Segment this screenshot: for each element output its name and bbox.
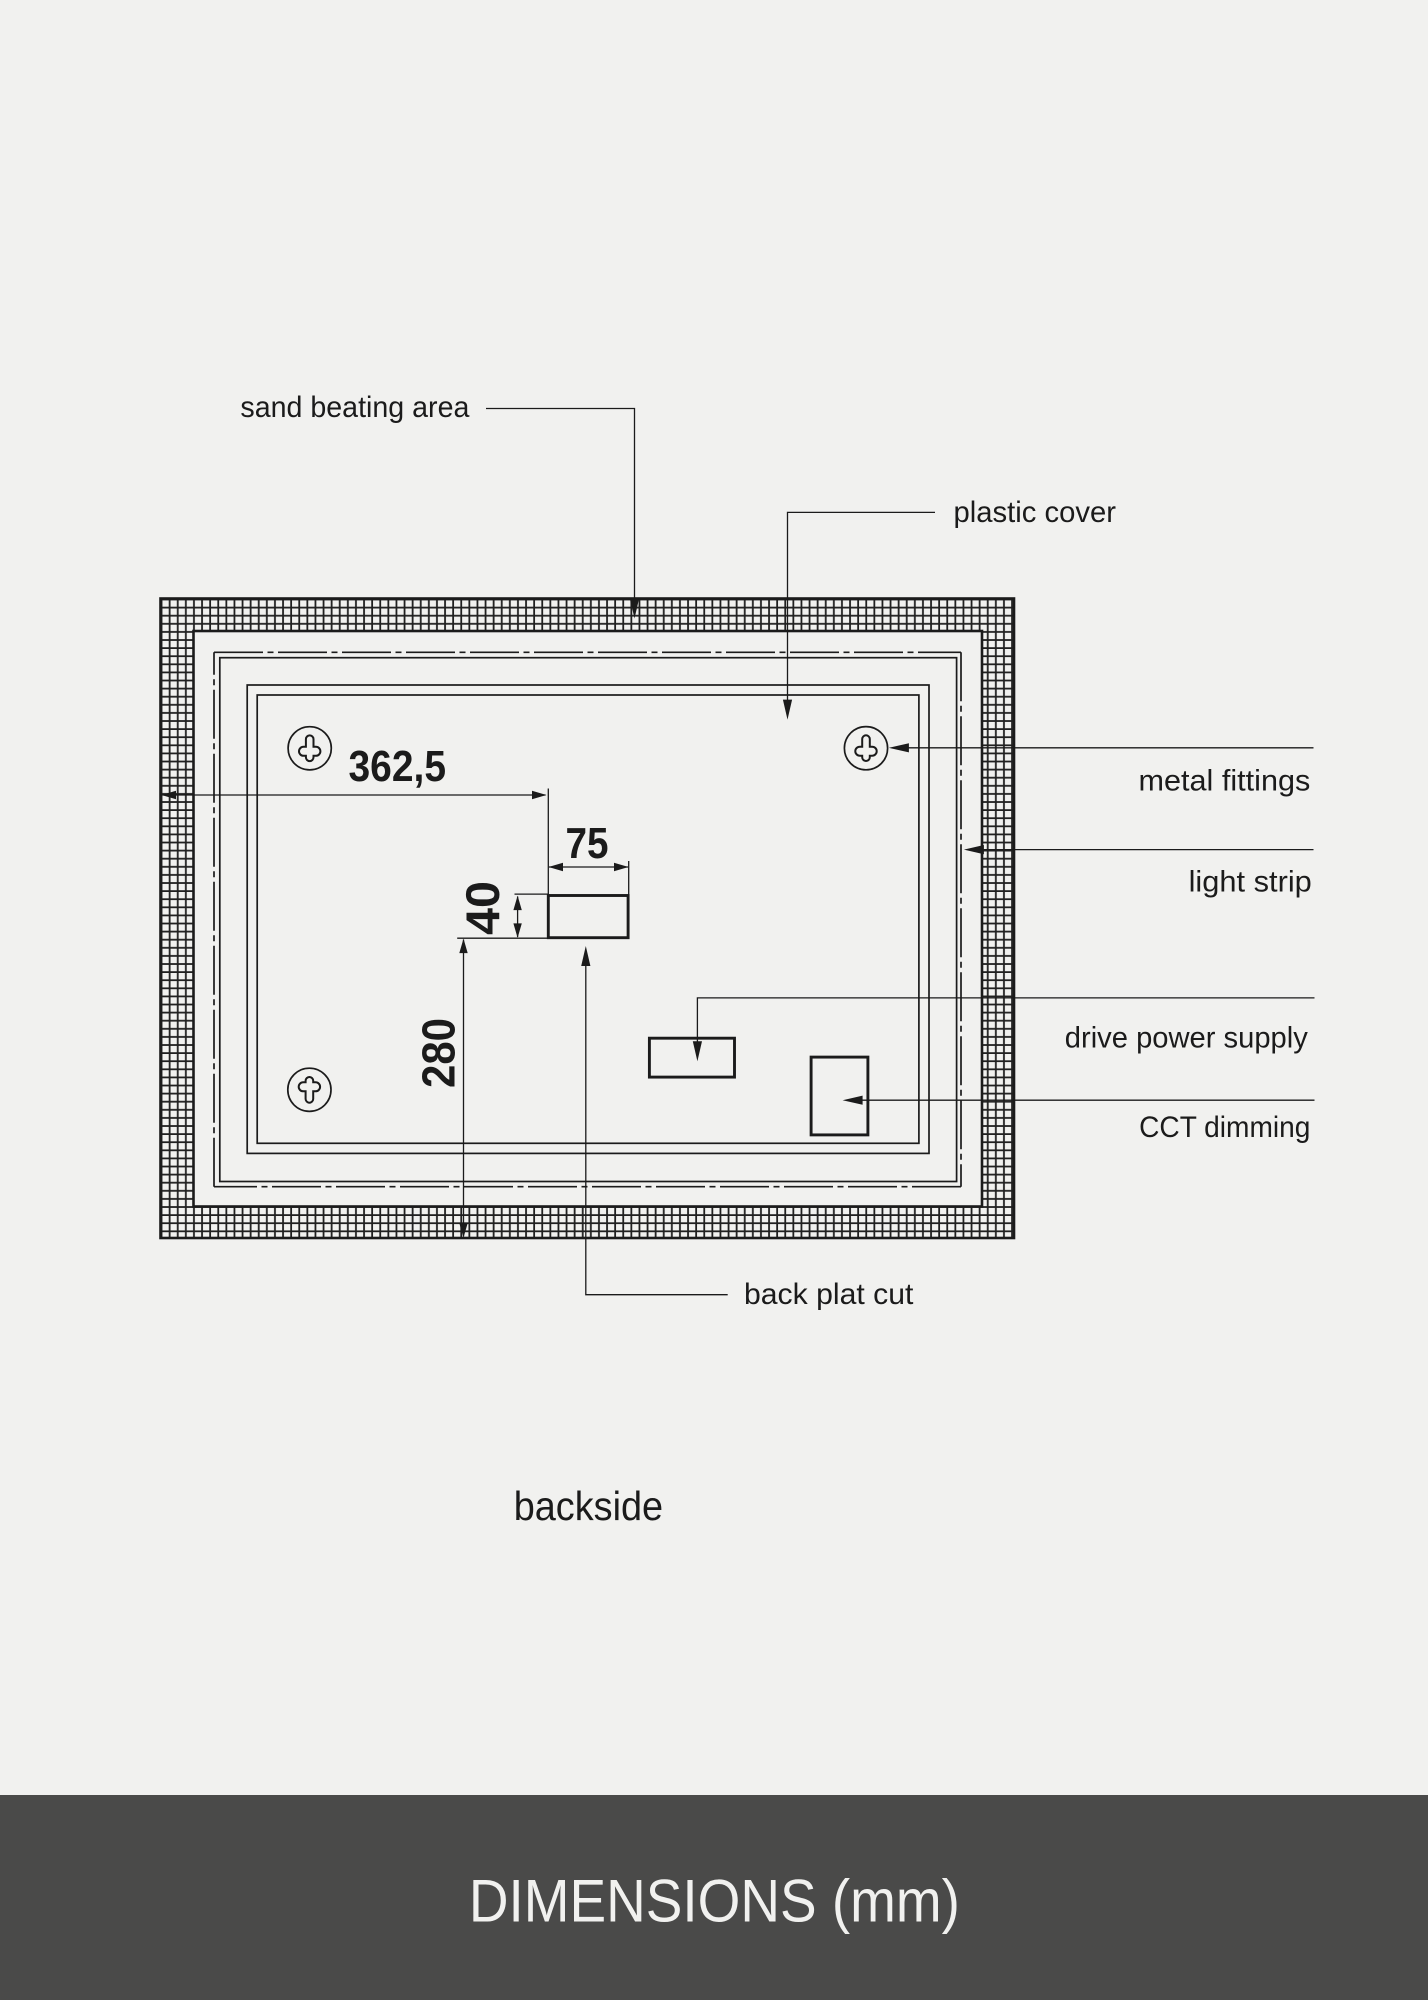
svg-text:light strip: light strip [1189,866,1312,899]
svg-text:362,5: 362,5 [349,742,447,791]
svg-text:sand beating area: sand beating area [240,391,469,424]
svg-text:plastic cover: plastic cover [954,496,1117,529]
svg-text:back plat cut: back plat cut [744,1278,914,1311]
svg-text:backside: backside [514,1483,663,1529]
svg-text:metal fittings: metal fittings [1139,764,1311,797]
svg-text:75: 75 [566,819,609,868]
svg-text:drive power supply: drive power supply [1065,1022,1308,1055]
svg-text:280: 280 [413,1018,465,1088]
svg-text:DIMENSIONS (mm): DIMENSIONS (mm) [469,1867,960,1934]
svg-text:40: 40 [456,881,509,935]
svg-text:CCT dimming: CCT dimming [1139,1111,1310,1144]
